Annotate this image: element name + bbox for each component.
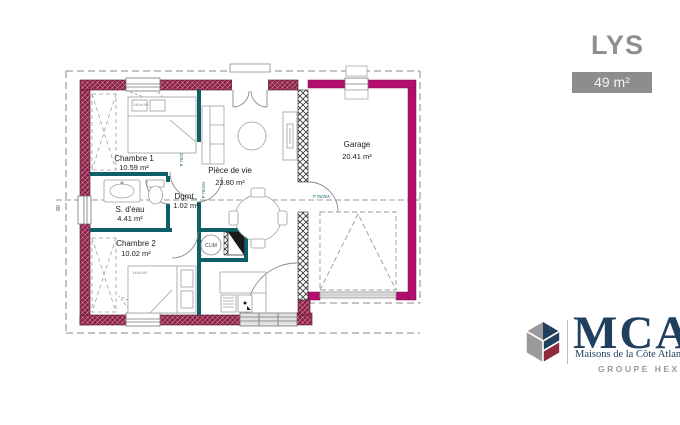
room-label-garage-name: Garage (344, 140, 371, 149)
door-label-garage: P 75/204 (313, 194, 330, 199)
logo-group-name: GROUPE HEXA (598, 364, 680, 374)
shared-wall-hatched (298, 90, 308, 300)
room-label-degagement-name: Dgmt (174, 192, 194, 201)
room-label-chambre1-area: 10.59 m² (119, 163, 149, 172)
room-label-chambre2-name: Chambre 2 (116, 239, 156, 248)
room-label-piece-de-vie-area: 23.80 m² (215, 178, 245, 187)
kitchen (220, 272, 266, 313)
entrance-door (230, 64, 270, 107)
exterior-walls-garage (308, 80, 416, 300)
cube-logo-icon (522, 318, 564, 366)
technical-closet: CLIM (201, 232, 244, 255)
logo-tagline: Maisons de la Côte Atlantique (575, 349, 680, 360)
room-label-chambre1-name: Chambre 1 (114, 154, 154, 163)
brand-logo: MCA Maisons de la Côte Atlantique GROUPE… (520, 312, 680, 387)
clim-unit-label: CLIM (205, 243, 217, 249)
room-label-sdeau-area: 4.41 m² (117, 214, 143, 223)
plan-title: LYS (555, 30, 680, 61)
door-arc-chambre2 (172, 232, 198, 258)
bed-size-chambre2: 140x200 (132, 270, 148, 275)
door-arc-bay (247, 263, 297, 313)
room-label-degagement-area: 1.02 m² (173, 201, 199, 210)
area-badge: 49 m² (572, 72, 652, 93)
dining-table (235, 195, 281, 241)
furniture-sdeau (104, 180, 164, 204)
floorplan-page: 60 (0, 0, 680, 425)
room-label-garage-area: 20.41 m² (342, 152, 372, 161)
room-label-sdeau-name: S. d'eau (115, 205, 144, 214)
garage-door (320, 212, 396, 298)
window-sdeau (78, 196, 91, 224)
furniture-living (202, 106, 297, 248)
bed-size-chambre1: 140x190 (133, 102, 149, 107)
logo-divider (567, 320, 568, 364)
room-label-piece-de-vie-name: Pièce de vie (208, 166, 252, 175)
door-label-degagement: P 75/204 (201, 181, 206, 198)
coffee-table (238, 122, 266, 150)
sofa (202, 106, 224, 164)
dimension-60: 60 (56, 205, 62, 211)
room-label-chambre2-area: 10.02 m² (121, 249, 151, 258)
window-garage (345, 66, 368, 99)
water-heater-hatch (224, 232, 228, 255)
bay-window (240, 313, 297, 326)
